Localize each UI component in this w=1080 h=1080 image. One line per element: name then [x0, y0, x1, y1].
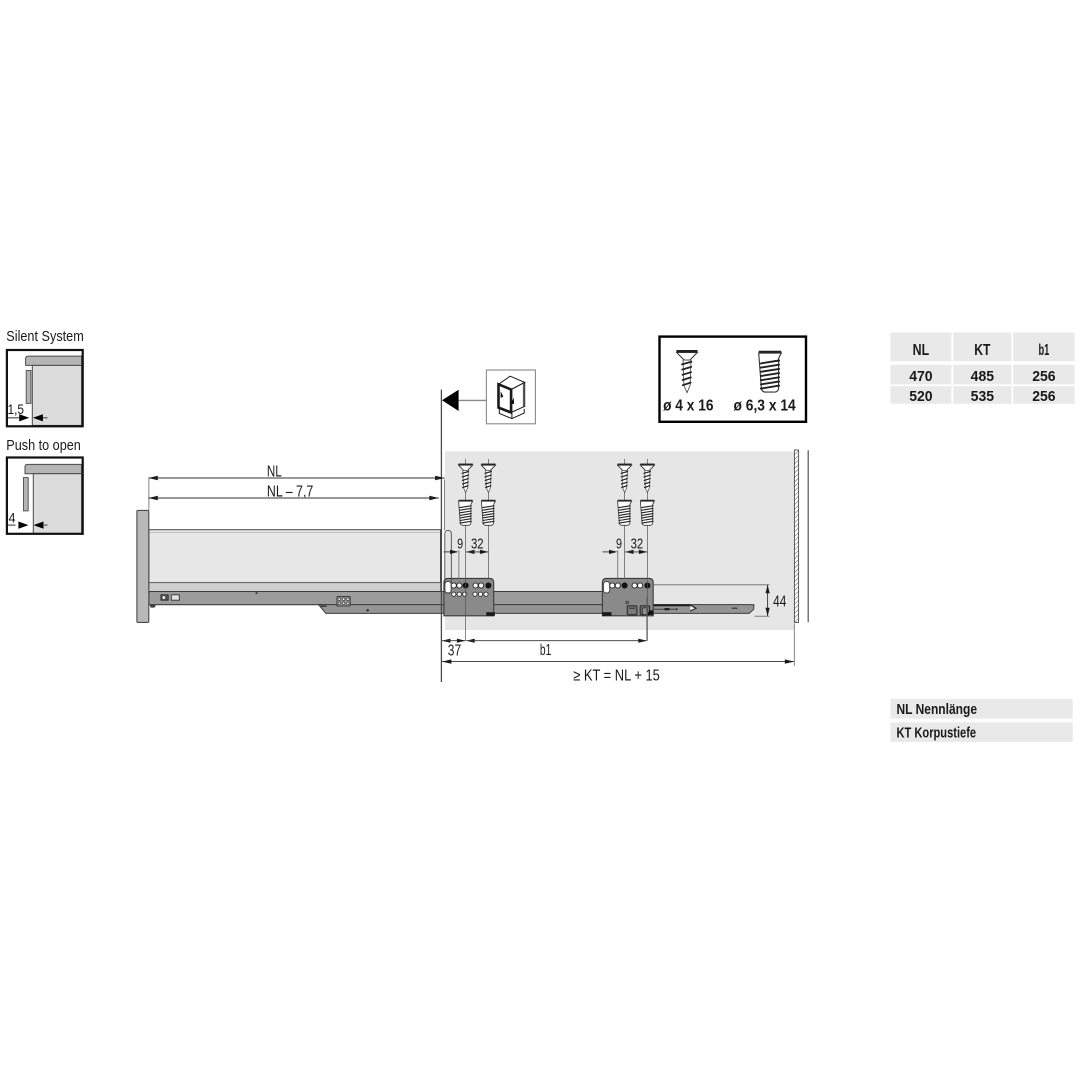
svg-text:37: 37: [448, 643, 461, 660]
svg-text:485: 485: [971, 368, 994, 385]
svg-text:32: 32: [471, 535, 484, 552]
svg-text:Silent System: Silent System: [6, 329, 84, 345]
svg-text:1,5: 1,5: [8, 401, 25, 417]
svg-text:KT Korpustiefe: KT Korpustiefe: [897, 726, 977, 742]
svg-text:535: 535: [971, 388, 994, 405]
svg-text:9: 9: [457, 535, 463, 552]
svg-text:Push to open: Push to open: [6, 438, 81, 454]
svg-text:NL Nennlänge: NL Nennlänge: [897, 702, 978, 718]
svg-text:520: 520: [909, 388, 932, 405]
svg-text:KT: KT: [974, 342, 990, 359]
svg-text:32: 32: [631, 535, 644, 552]
svg-text:256: 256: [1032, 368, 1055, 385]
svg-text:ø 4 x 16: ø 4 x 16: [663, 398, 713, 415]
svg-text:b1: b1: [540, 642, 551, 659]
svg-text:NL: NL: [913, 342, 930, 359]
svg-text:44: 44: [773, 594, 786, 611]
svg-text:≥ KT = NL + 15: ≥ KT = NL + 15: [573, 667, 660, 684]
svg-text:470: 470: [909, 368, 932, 385]
svg-text:9: 9: [616, 535, 622, 552]
svg-text:4: 4: [9, 510, 16, 526]
svg-text:ø 6,3 x 14: ø 6,3 x 14: [734, 398, 796, 415]
svg-text:b1: b1: [1039, 342, 1050, 359]
svg-text:256: 256: [1032, 388, 1055, 405]
